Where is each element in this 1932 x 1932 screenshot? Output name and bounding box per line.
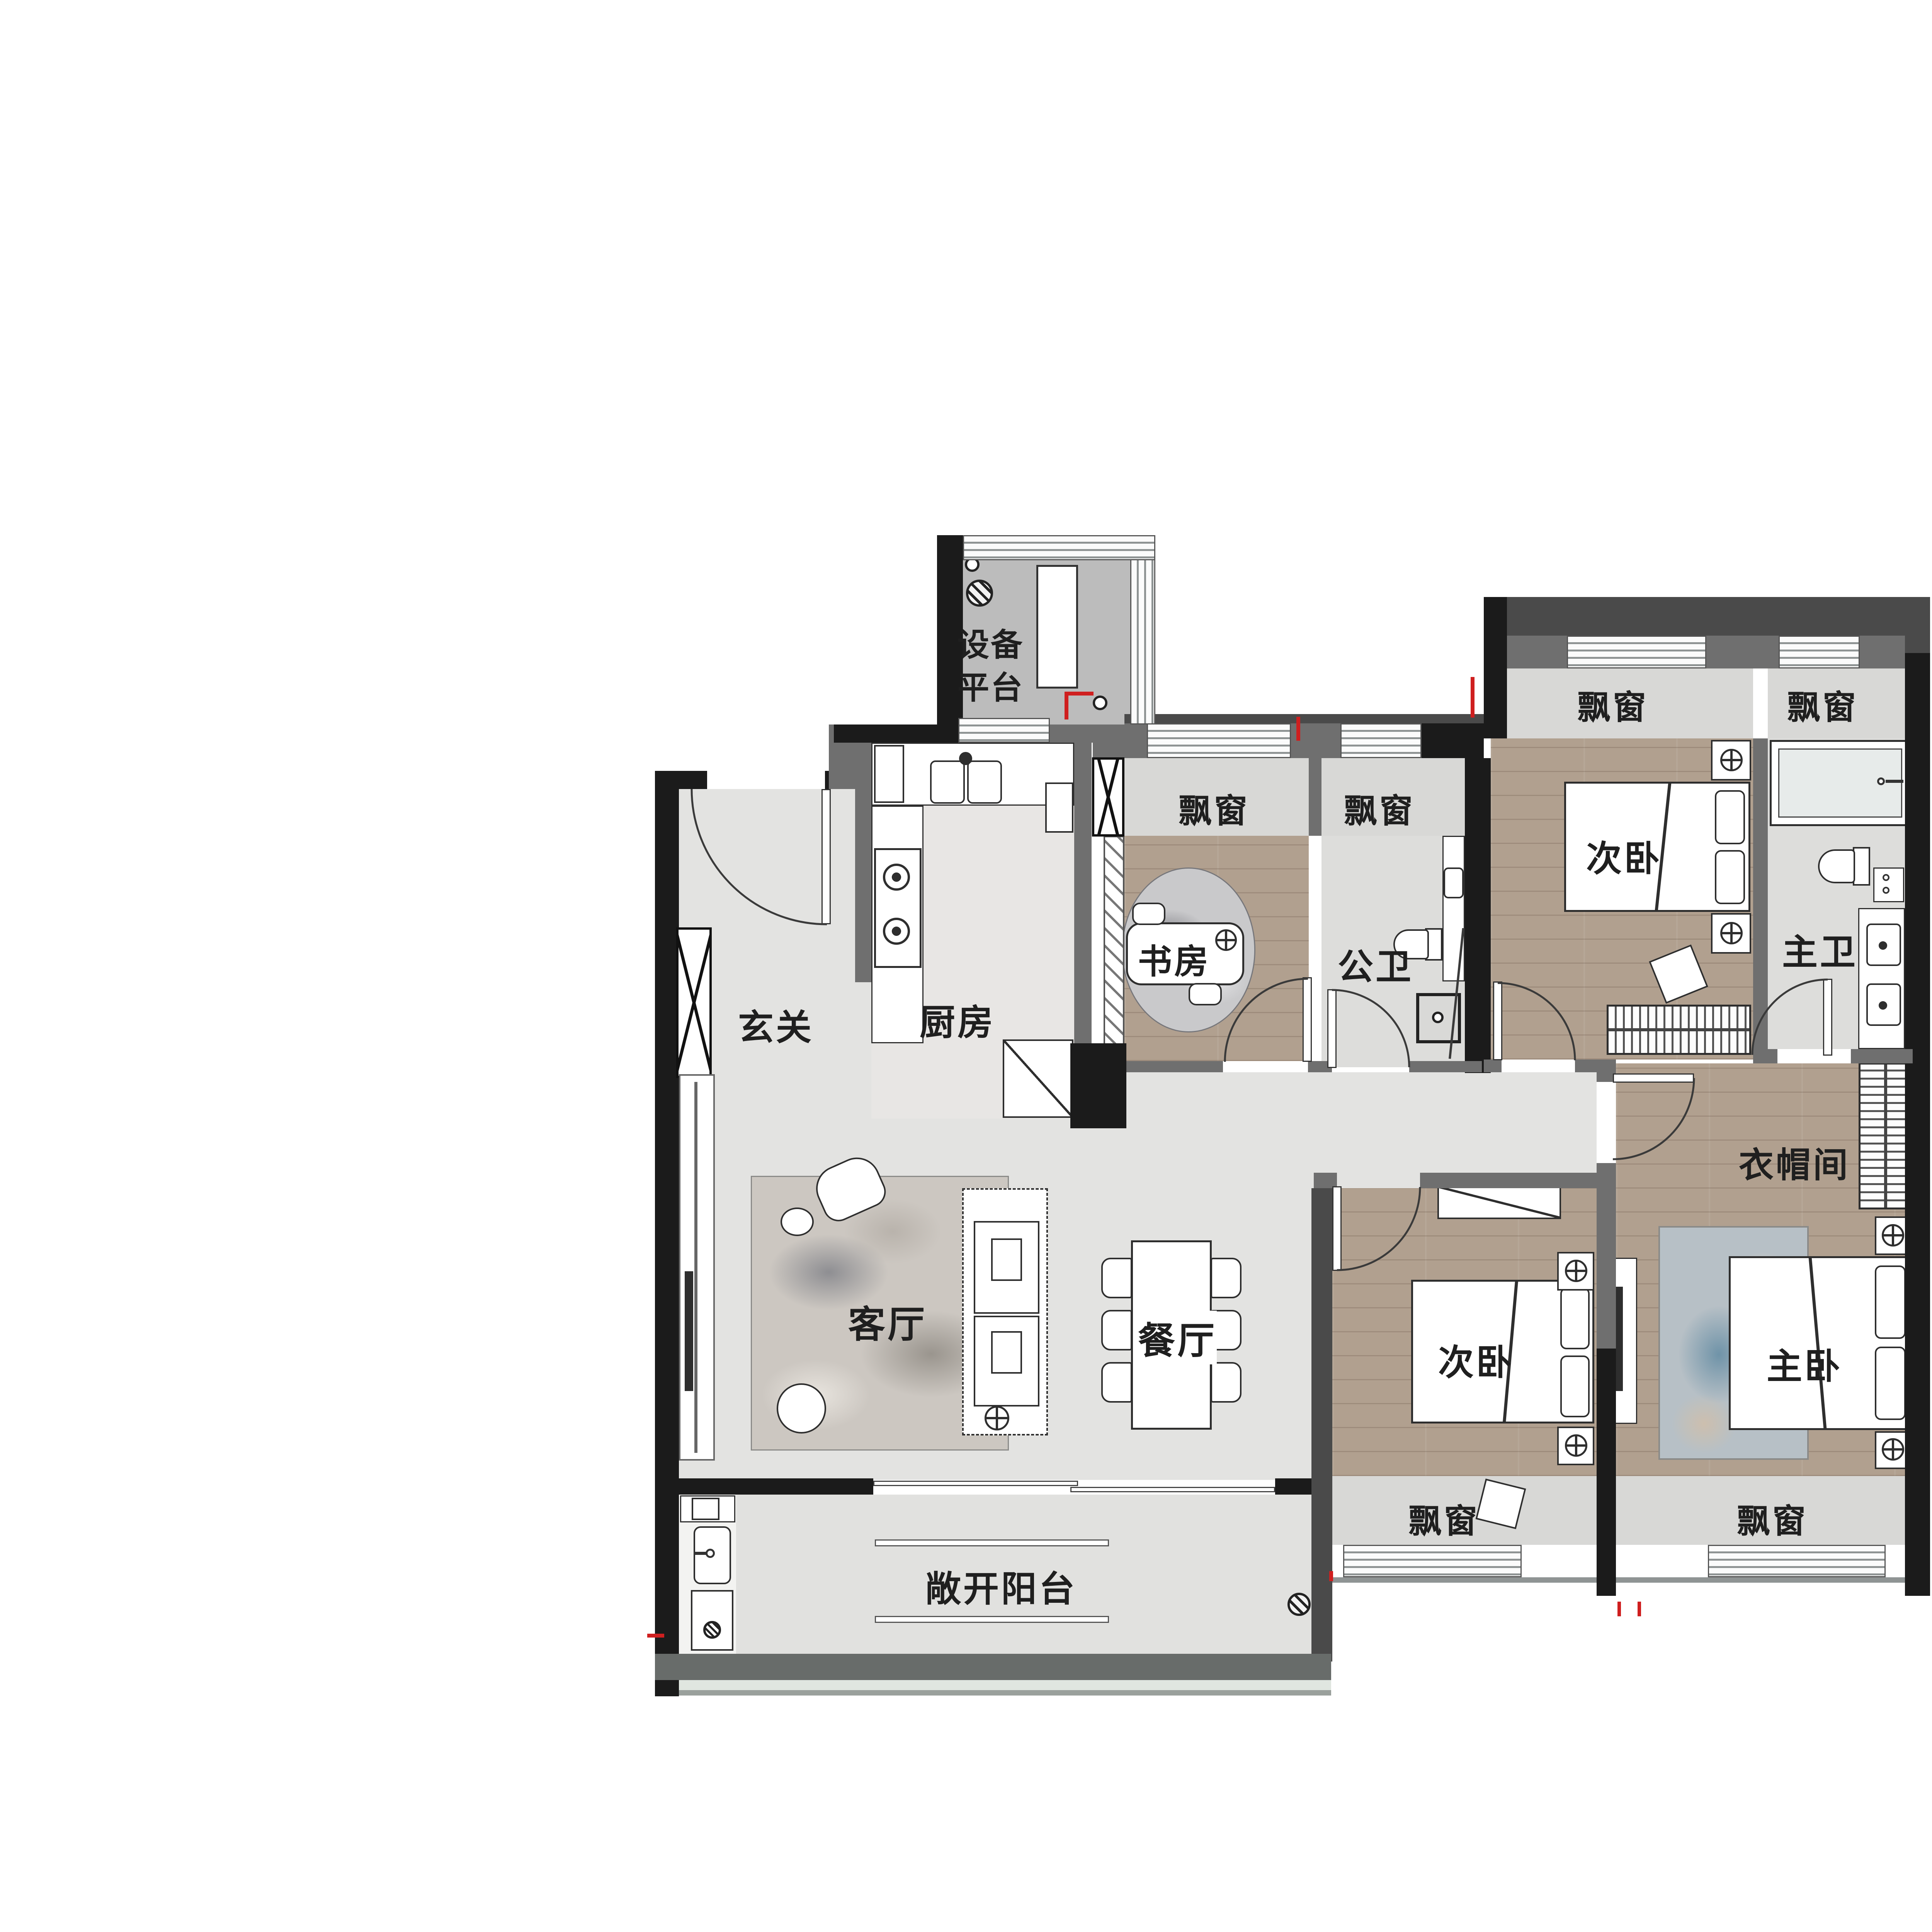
red-mark-bay-2 bbox=[1638, 1602, 1641, 1616]
red-mark-bath-wall bbox=[1471, 677, 1475, 718]
red-mark-top-mid bbox=[1296, 717, 1300, 741]
bay-label-bedroom-bottom: 飘窗 bbox=[1408, 1494, 1480, 1542]
master-bedroom-label: 主卧 bbox=[1767, 1338, 1842, 1389]
public-bath-label: 公卫 bbox=[1338, 938, 1413, 990]
bay-label-bedroom-top: 飘窗 bbox=[1577, 680, 1648, 728]
equipment-platform-label: 设备平台 bbox=[957, 624, 1035, 709]
public-bath-door-arc bbox=[1332, 990, 1409, 1067]
door-swing-arcs bbox=[0, 0, 1932, 1932]
cloakroom-label: 衣帽间 bbox=[1739, 1137, 1850, 1187]
master-bath-label: 主卫 bbox=[1782, 923, 1858, 975]
bay-label-master-bedroom: 飘窗 bbox=[1737, 1494, 1808, 1542]
bay-label-master-bath: 飘窗 bbox=[1787, 680, 1858, 728]
floor-plan: 设备平台 玄关 厨房 书房 公卫 飘窗 飘窗 飘窗 飘窗 次卧 主卫 衣帽间 客… bbox=[0, 0, 1932, 1932]
kitchen-label: 厨房 bbox=[920, 994, 995, 1045]
balcony-label: 敞开阳台 bbox=[925, 1560, 1077, 1612]
red-mark-left-wall bbox=[647, 1634, 664, 1638]
bedroom-top-door-arc bbox=[1498, 983, 1575, 1060]
entrance-door-arc bbox=[692, 789, 827, 924]
red-mark-platform-h bbox=[1066, 692, 1094, 696]
master-entry-door-arc bbox=[1613, 1078, 1694, 1159]
shower-door-line bbox=[1450, 928, 1463, 1059]
bedroom-bottom-label: 次卧 bbox=[1438, 1334, 1514, 1385]
bedroom-top-label: 次卧 bbox=[1586, 830, 1662, 881]
study-door-arc bbox=[1225, 979, 1308, 1062]
living-label: 客厅 bbox=[848, 1294, 927, 1348]
hall-label: 玄关 bbox=[738, 999, 814, 1050]
study-label: 书房 bbox=[1138, 934, 1211, 983]
red-mark-bay-1 bbox=[1617, 1602, 1621, 1616]
red-mark-balcony-corner bbox=[1329, 1571, 1333, 1581]
red-mark-platform-v bbox=[1065, 692, 1068, 719]
master-bath-door-arc bbox=[1752, 980, 1828, 1055]
bedroom-bottom-door-arc bbox=[1337, 1187, 1420, 1270]
bay-label-bath: 飘窗 bbox=[1344, 784, 1415, 832]
bay-label-study: 飘窗 bbox=[1179, 784, 1250, 832]
dining-label: 餐厅 bbox=[1138, 1311, 1217, 1364]
